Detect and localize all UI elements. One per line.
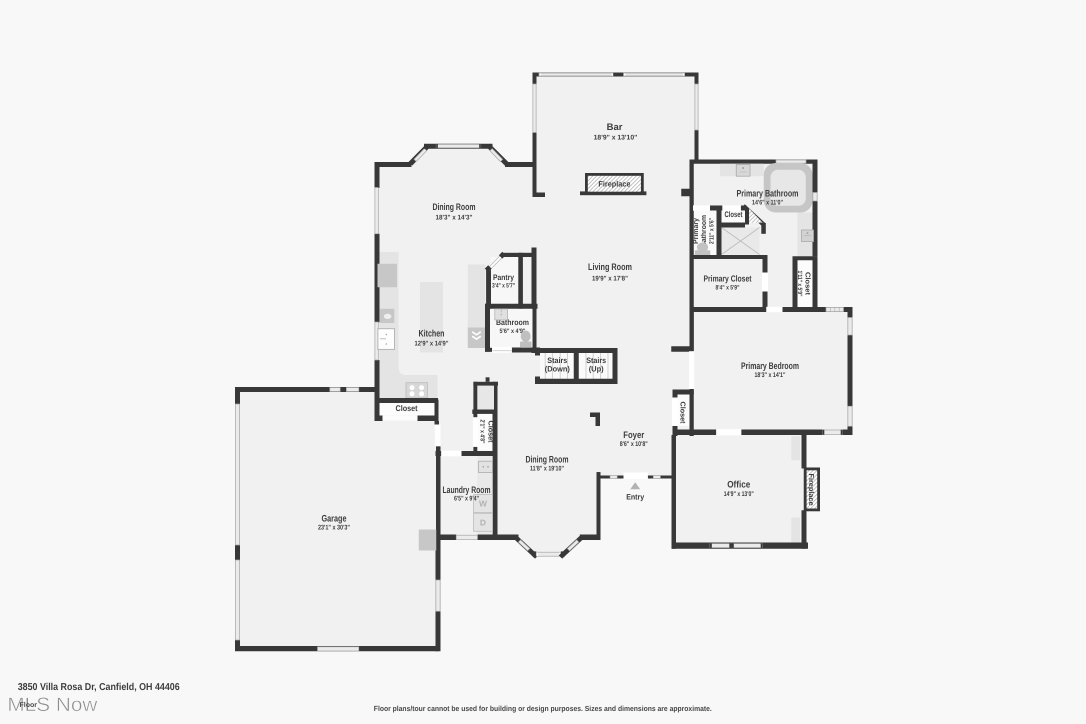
- svg-text:3'4" x 5'7": 3'4" x 5'7": [492, 283, 515, 290]
- svg-text:Primary Bedroom: Primary Bedroom: [741, 361, 799, 372]
- svg-text:Closet: Closet: [396, 404, 418, 413]
- svg-text:18'3" x 14'1": 18'3" x 14'1": [755, 372, 786, 379]
- svg-text:Floor plans/tour cannot be use: Floor plans/tour cannot be used for buil…: [374, 704, 712, 713]
- svg-text:Dining Room: Dining Room: [433, 202, 476, 213]
- svg-text:Kitchen: Kitchen: [419, 329, 445, 340]
- svg-text:14'6" x 11'0": 14'6" x 11'0": [752, 200, 783, 207]
- svg-text:Pantry: Pantry: [493, 273, 514, 282]
- svg-text:Fireplace: Fireplace: [598, 179, 631, 188]
- svg-text:Floor: Floor: [20, 701, 38, 709]
- svg-text:Office: Office: [727, 479, 750, 490]
- svg-text:(Down): (Down): [545, 365, 570, 374]
- svg-text:18'3" x 14'3": 18'3" x 14'3": [436, 215, 473, 222]
- svg-text:12'9" x 14'9": 12'9" x 14'9": [415, 340, 449, 347]
- svg-text:Primary Closet: Primary Closet: [704, 274, 752, 284]
- svg-text:Fireplace: Fireplace: [807, 474, 816, 506]
- svg-text:Dining Room: Dining Room: [526, 455, 569, 466]
- svg-text:Primary Bathroom: Primary Bathroom: [737, 189, 799, 200]
- svg-text:19'9" x 17'8": 19'9" x 17'8": [592, 276, 628, 283]
- svg-text:Living Room: Living Room: [588, 262, 632, 273]
- svg-text:W: W: [479, 499, 488, 509]
- svg-text:(Up): (Up): [589, 365, 604, 374]
- svg-text:11'8" x 19'10": 11'8" x 19'10": [530, 465, 564, 472]
- svg-text:3850 Villa Rosa Dr, Canfield,: 3850 Villa Rosa Dr, Canfield, OH 44406: [18, 682, 180, 693]
- svg-text:D: D: [480, 517, 486, 527]
- svg-text:Foyer: Foyer: [623, 430, 644, 441]
- svg-text:18'9" x 13'10": 18'9" x 13'10": [594, 135, 638, 142]
- svg-text:Garage: Garage: [322, 514, 347, 525]
- svg-text:8'4" x 5'9": 8'4" x 5'9": [716, 284, 740, 291]
- svg-text:Bar: Bar: [607, 122, 623, 133]
- svg-text:14'9" x 13'0": 14'9" x 13'0": [724, 491, 754, 498]
- svg-text:2'11" x 5'6": 2'11" x 5'6": [709, 218, 716, 244]
- svg-text:8'6" x 10'8": 8'6" x 10'8": [620, 441, 648, 448]
- svg-text:Closet: Closet: [679, 402, 688, 425]
- svg-text:Closet: Closet: [804, 272, 813, 296]
- svg-text:Bathroom: Bathroom: [699, 215, 708, 247]
- svg-text:23'1" x 30'3": 23'1" x 30'3": [318, 525, 350, 532]
- svg-text:6'5" x 9'4": 6'5" x 9'4": [454, 496, 479, 503]
- svg-text:Entry: Entry: [626, 493, 645, 502]
- svg-text:Closet: Closet: [486, 421, 495, 444]
- svg-text:2'1" x 4'8": 2'1" x 4'8": [478, 420, 485, 444]
- svg-text:Laundry Room: Laundry Room: [443, 485, 491, 496]
- svg-text:Closet: Closet: [725, 210, 743, 219]
